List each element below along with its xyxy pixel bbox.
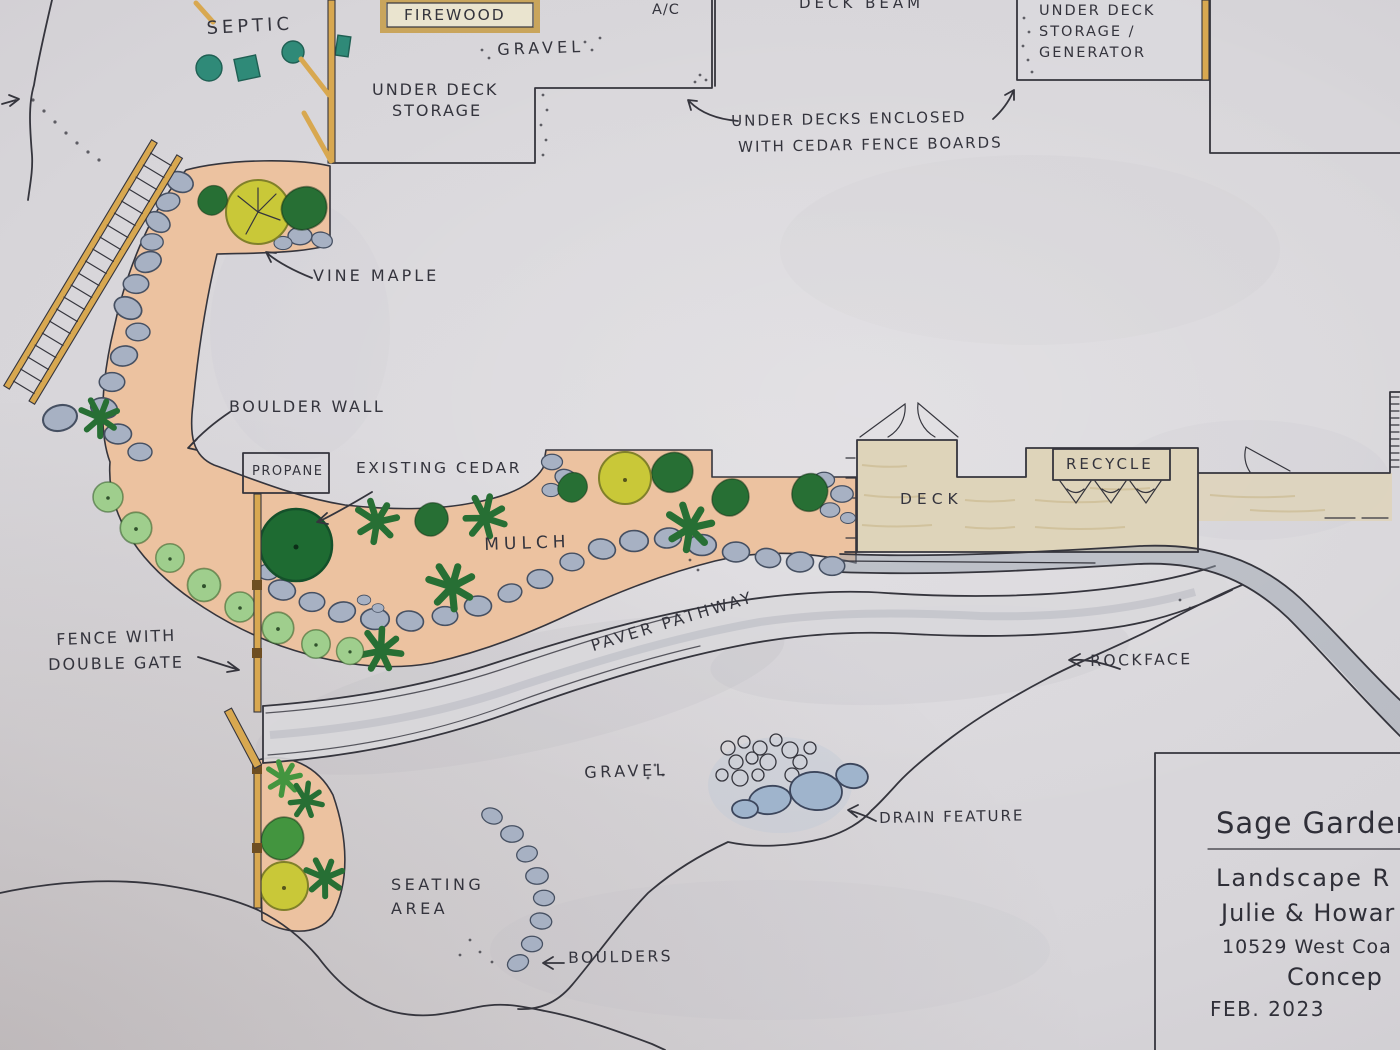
label-gravel-south: GRAVEL: [584, 760, 668, 782]
label-ac: A/C: [652, 2, 680, 18]
title-block-line4: Concep: [1287, 963, 1383, 991]
label-gravel-top: GRAVEL: [497, 37, 584, 59]
deck-section-middle: [957, 477, 1026, 552]
label-deck-beam: DECK BEAM: [799, 0, 924, 12]
label-rockface: ROCKFACE: [1090, 650, 1193, 670]
label-vine-maple: VINE MAPLE: [313, 266, 439, 285]
label-generator-3: GENERATOR: [1039, 45, 1146, 61]
label-recycle: RECYCLE: [1066, 455, 1154, 473]
title-block-line2: Julie & Howar: [1221, 899, 1395, 927]
dotted-guide: [31, 98, 100, 161]
label-mulch: MULCH: [484, 532, 571, 555]
plan-drawing: [0, 0, 1400, 1050]
label-propane: PROPANE: [252, 464, 323, 479]
fence-south: [254, 766, 261, 908]
label-seating-area-2: AREA: [391, 899, 448, 918]
label-existing-cedar: EXISTING CEDAR: [356, 459, 522, 477]
label-drain-feature: DRAIN FEATURE: [879, 806, 1025, 827]
fence-west: [254, 494, 261, 712]
label-boulder-wall: BOULDER WALL: [229, 397, 385, 416]
label-under-deck-storage-1: UNDER DECK: [372, 80, 498, 99]
landscape-plan-sheet: SEPTIC FIREWOOD GRAVEL UNDER DECK STORAG…: [0, 0, 1400, 1050]
title-block-line1: Landscape R: [1216, 864, 1391, 892]
title-block-project: Sage Garden: [1216, 806, 1400, 840]
vine-maple-tree: [226, 180, 290, 244]
label-seating-area-1: SEATING: [391, 875, 484, 894]
label-boulders: BOULDERS: [568, 947, 673, 967]
stairs-ticks: [1390, 397, 1399, 467]
label-generator-2: STORAGE /: [1039, 24, 1136, 40]
gate-bar: [224, 708, 261, 768]
label-generator-1: UNDER DECK: [1039, 3, 1155, 19]
fence-north: [328, 0, 335, 163]
label-firewood: FIREWOOD: [404, 6, 506, 24]
title-block-date: FEB. 2023: [1210, 997, 1325, 1021]
label-under-deck-storage-2: STORAGE: [392, 101, 482, 120]
label-fence-note-2: DOUBLE GATE: [48, 653, 184, 674]
fence-northeast: [1202, 0, 1209, 80]
title-block-line3: 10529 West Coa: [1222, 936, 1392, 958]
drain-feature: [708, 734, 870, 833]
label-deck: DECK: [900, 490, 963, 508]
